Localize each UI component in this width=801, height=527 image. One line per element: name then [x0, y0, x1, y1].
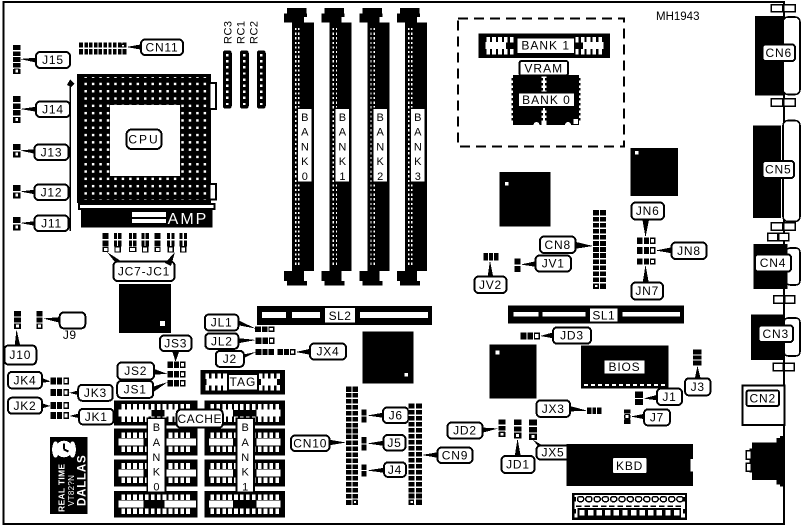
svg-text:RC3: RC3 — [223, 20, 235, 44]
svg-text:A: A — [301, 127, 309, 139]
svg-text:0: 0 — [302, 171, 308, 183]
svg-text:JK1: JK1 — [85, 410, 108, 424]
svg-text:CN2: CN2 — [750, 391, 776, 405]
svg-text:A: A — [414, 127, 422, 139]
svg-text:J6: J6 — [389, 408, 403, 422]
svg-text:J5: J5 — [387, 436, 401, 450]
svg-text:CN4: CN4 — [760, 256, 786, 270]
svg-text:SL2: SL2 — [329, 309, 352, 323]
svg-text:0: 0 — [153, 482, 159, 494]
svg-text:CN3: CN3 — [763, 327, 789, 341]
svg-text:J3: J3 — [691, 380, 705, 394]
svg-text:J11: J11 — [41, 216, 62, 230]
svg-text:JS1: JS1 — [124, 383, 147, 397]
svg-text:CN11: CN11 — [146, 40, 179, 54]
svg-text:J14: J14 — [42, 102, 64, 116]
svg-text:RC1: RC1 — [236, 20, 248, 44]
svg-text:B: B — [339, 112, 346, 124]
svg-text:JD3: JD3 — [560, 329, 584, 343]
svg-text:N: N — [301, 141, 309, 153]
svg-text:B: B — [153, 422, 160, 434]
svg-text:N: N — [376, 141, 384, 153]
svg-text:JD2: JD2 — [453, 424, 477, 438]
svg-text:K: K — [301, 156, 309, 168]
svg-text:B: B — [414, 112, 421, 124]
svg-text:JS2: JS2 — [124, 364, 147, 378]
svg-text:N: N — [338, 141, 346, 153]
svg-text:JD1: JD1 — [506, 458, 530, 472]
svg-text:J1: J1 — [662, 390, 676, 404]
svg-text:J4: J4 — [388, 463, 402, 477]
svg-text:JX3: JX3 — [542, 402, 565, 416]
svg-text:JC7-JC1: JC7-JC1 — [118, 264, 170, 278]
svg-text:1: 1 — [339, 171, 345, 183]
svg-text:JV1: JV1 — [542, 257, 565, 271]
svg-text:RC2: RC2 — [249, 20, 261, 44]
svg-text:CN5: CN5 — [765, 163, 791, 177]
svg-text:N: N — [152, 452, 160, 464]
svg-text:JS3: JS3 — [164, 336, 187, 350]
svg-text:J15: J15 — [42, 53, 64, 67]
svg-text:J2: J2 — [223, 352, 237, 366]
svg-text:B: B — [377, 112, 384, 124]
svg-text:JN8: JN8 — [677, 244, 701, 258]
svg-text:K: K — [339, 156, 347, 168]
svg-text:A: A — [242, 437, 250, 449]
svg-text:JL2: JL2 — [211, 334, 233, 348]
svg-text:JN6: JN6 — [636, 204, 660, 218]
svg-text:JK3: JK3 — [84, 386, 107, 400]
svg-text:BANK 1: BANK 1 — [521, 39, 570, 53]
svg-text:JK4: JK4 — [13, 373, 36, 387]
svg-text:JK2: JK2 — [13, 399, 36, 413]
svg-text:J13: J13 — [41, 145, 63, 159]
svg-text:AMP: AMP — [168, 211, 209, 228]
svg-text:BANK 0: BANK 0 — [522, 93, 571, 107]
svg-text:J9: J9 — [63, 328, 77, 342]
svg-text:K: K — [153, 467, 161, 479]
svg-text:VRAM: VRAM — [524, 61, 563, 75]
svg-text:TAG: TAG — [230, 375, 257, 389]
svg-text:JX5: JX5 — [541, 446, 564, 460]
svg-text:CN9: CN9 — [442, 448, 468, 462]
svg-text:CPU: CPU — [128, 132, 159, 146]
svg-text:DALLAS: DALLAS — [77, 455, 89, 506]
svg-text:CN10: CN10 — [293, 436, 327, 450]
svg-text:N: N — [414, 141, 422, 153]
svg-text:N: N — [241, 452, 249, 464]
svg-text:A: A — [153, 437, 161, 449]
svg-text:A: A — [377, 127, 385, 139]
svg-text:K: K — [377, 156, 385, 168]
svg-text:JX4: JX4 — [316, 345, 339, 359]
svg-text:K: K — [414, 156, 422, 168]
svg-text:KBD: KBD — [616, 459, 643, 473]
svg-text:JV2: JV2 — [479, 278, 502, 292]
svg-text:VT82?N: VT82?N — [67, 475, 76, 506]
svg-text:J10: J10 — [9, 348, 31, 362]
svg-text:J7: J7 — [650, 411, 664, 425]
svg-text:BIOS: BIOS — [609, 360, 641, 374]
svg-text:3: 3 — [415, 171, 421, 183]
svg-text:B: B — [301, 112, 308, 124]
svg-text:2: 2 — [377, 171, 383, 183]
svg-text:K: K — [242, 467, 250, 479]
svg-text:REAL TIME: REAL TIME — [57, 464, 67, 512]
svg-text:SL1: SL1 — [592, 308, 615, 322]
svg-text:JL1: JL1 — [211, 316, 233, 330]
svg-text:JN7: JN7 — [635, 284, 659, 298]
svg-text:CN6: CN6 — [766, 46, 792, 60]
svg-text:J12: J12 — [41, 185, 63, 199]
svg-text:A: A — [339, 127, 347, 139]
svg-text:CN8: CN8 — [545, 238, 571, 252]
svg-text:CACHE: CACHE — [177, 412, 222, 426]
svg-text:B: B — [242, 422, 249, 434]
svg-text:MH1943: MH1943 — [656, 11, 699, 23]
svg-text:1: 1 — [242, 482, 248, 494]
